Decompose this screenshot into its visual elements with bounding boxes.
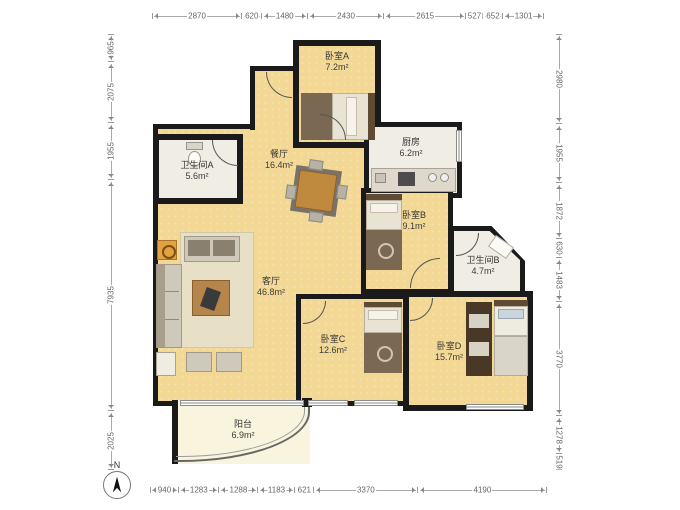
- dim-chain-bottom: 94012831288118362133704190: [150, 482, 547, 497]
- bed-c-pillow: [368, 310, 398, 320]
- label-bathroom-a: 卫生间A5.6m²: [180, 160, 213, 182]
- sofa-cushion-2: [213, 240, 235, 256]
- label-bedroom-d: 卧室D15.7m²: [435, 341, 463, 363]
- dim-value: 1955: [554, 143, 563, 163]
- room-area: 16.4m²: [265, 160, 293, 171]
- dim-segment: 652: [483, 8, 503, 23]
- toilet-tank: [186, 142, 203, 150]
- room-name: 卧室B: [402, 210, 426, 220]
- dim-chain-left: 9652075195579352025: [103, 34, 118, 470]
- bed-d-blanket: [494, 336, 528, 376]
- dim-segment: 621: [295, 482, 314, 497]
- dim-segment: 1480: [262, 8, 308, 23]
- lamp-icon: [162, 245, 176, 259]
- label-kitchen: 厨房6.2m²: [399, 137, 422, 159]
- sofa-seam-2: [165, 319, 179, 320]
- dim-arrow-icon: [219, 487, 225, 493]
- dim-arrow-icon: [258, 487, 264, 493]
- dim-arrow-icon: [384, 13, 390, 19]
- dim-segment: 1955: [551, 124, 566, 183]
- bed-b-blanket: [366, 230, 402, 270]
- dim-value: 1872: [554, 201, 563, 221]
- table-decor: [200, 287, 221, 311]
- dim-value: 1955: [106, 141, 115, 161]
- dim-value: 1283: [189, 485, 209, 494]
- dim-value: 630: [554, 241, 563, 256]
- dim-segment: 1483: [551, 258, 566, 303]
- room-area: 15.7m²: [435, 352, 463, 363]
- dim-arrow-icon: [152, 13, 158, 19]
- compass: N: [100, 460, 134, 499]
- bed-c-blanket: [364, 333, 402, 373]
- north-arrow-icon: [103, 471, 131, 499]
- dim-segment: 1955: [103, 123, 118, 180]
- dim-segment: 1183: [258, 482, 294, 497]
- dim-segment: 965: [103, 34, 118, 62]
- bedroom-c-window-2: [354, 400, 398, 406]
- bed-headboard: [368, 93, 375, 140]
- room-area: 46.8m²: [257, 287, 285, 298]
- dim-arrow-icon: [314, 487, 320, 493]
- room-name: 卫生间A: [180, 160, 213, 170]
- dim-segment: 1872: [551, 183, 566, 239]
- dim-value: 1288: [229, 485, 249, 494]
- dim-segment: 3770: [551, 302, 566, 415]
- dim-segment: 2615: [384, 8, 466, 23]
- kitchen-sink: [375, 173, 386, 183]
- room-name: 餐厅: [270, 149, 288, 159]
- room-name: 卧室C: [321, 334, 346, 344]
- side-table-lamp: [157, 240, 177, 260]
- dim-arrow-icon: [556, 183, 562, 189]
- dim-arrow-icon: [108, 62, 114, 68]
- dim-value: 940: [157, 485, 172, 494]
- dining-chair-3: [285, 184, 297, 199]
- dim-arrow-icon: [108, 180, 114, 186]
- dim-segment: 1301: [503, 8, 544, 23]
- room-area: 6.9m²: [231, 430, 254, 441]
- dim-segment: 2980: [551, 34, 566, 124]
- dim-segment: 1283: [179, 482, 219, 497]
- dim-value: 652: [485, 11, 500, 20]
- coffee-table: [192, 280, 230, 316]
- bed-pillow: [346, 97, 357, 136]
- label-bathroom-b: 卫生间B4.7m²: [466, 255, 499, 277]
- dim-arrow-icon: [418, 487, 424, 493]
- dim-segment: 519: [551, 454, 566, 470]
- kitchen-burner-icon: [428, 173, 437, 182]
- dim-arrow-icon: [108, 123, 114, 129]
- dim-value: 965: [106, 40, 115, 55]
- dim-value: 519: [554, 455, 563, 470]
- wardrobe-panel: [469, 314, 489, 328]
- dim-value: 2025: [106, 431, 115, 451]
- dim-arrow-icon: [556, 34, 562, 40]
- dim-segment: 2870: [152, 8, 242, 23]
- dim-value: 3770: [554, 349, 563, 369]
- sofa-seam: [165, 291, 179, 292]
- dim-arrow-icon: [541, 487, 547, 493]
- dim-arrow-icon: [556, 416, 562, 422]
- room-name: 厨房: [402, 137, 420, 147]
- dim-arrow-icon: [503, 13, 509, 19]
- dim-chain-top: 28706201480243026155276521301: [152, 8, 544, 23]
- dim-segment: 527: [466, 8, 483, 23]
- room-name: 阳台: [234, 419, 252, 429]
- dim-arrow-icon: [556, 302, 562, 308]
- north-label: N: [100, 460, 134, 470]
- label-bedroom-a: 卧室A7.2m²: [325, 51, 349, 73]
- dim-value: 1183: [267, 485, 286, 494]
- room-name: 卫生间B: [466, 255, 499, 265]
- dim-segment: 1288: [219, 482, 259, 497]
- balcony-door-window: [180, 400, 304, 406]
- room-name: 卧室D: [437, 341, 462, 351]
- room-name: 卧室A: [325, 51, 349, 61]
- dining-table: [295, 170, 338, 213]
- dim-value: 527: [467, 11, 482, 20]
- dining-chair-4: [336, 184, 348, 199]
- dim-value: 4190: [473, 485, 493, 494]
- dim-value: 2980: [554, 69, 563, 89]
- floor-plan: 28706201480243026155276521301 9401283128…: [0, 0, 680, 510]
- bedroom-d-window: [466, 404, 524, 410]
- blanket-ring-icon: [378, 243, 394, 259]
- dim-chain-right: 298019551872630148337701278519: [551, 34, 566, 470]
- dim-value: 1278: [554, 425, 563, 445]
- dim-segment: 7935: [103, 180, 118, 411]
- label-bedroom-b: 卧室B9.1m²: [402, 210, 426, 232]
- sofa-long: [156, 264, 182, 348]
- dim-value: 620: [244, 11, 259, 20]
- dim-arrow-icon: [108, 34, 114, 40]
- dim-value: 2870: [187, 11, 207, 20]
- living-cabinet: [156, 352, 176, 376]
- room-area: 12.6m²: [319, 345, 347, 356]
- sofa-cushion: [188, 240, 210, 256]
- label-balcony: 阳台6.9m²: [231, 419, 254, 441]
- dim-arrow-icon: [179, 487, 185, 493]
- bed-d-pillow: [498, 309, 524, 319]
- room-area: 6.2m²: [399, 148, 422, 159]
- dim-segment: 940: [150, 482, 179, 497]
- blanket-ring-icon-2: [377, 346, 393, 362]
- dim-segment: 620: [242, 8, 261, 23]
- kitchen-burner-icon-2: [440, 173, 449, 182]
- bedroom-c-window: [308, 400, 348, 406]
- dim-value: 1483: [554, 270, 563, 290]
- dim-value: 2430: [336, 11, 356, 20]
- room-name: 客厅: [262, 276, 280, 286]
- wardrobe-panel-2: [469, 342, 489, 356]
- ottoman: [186, 352, 212, 372]
- dim-arrow-icon: [150, 487, 156, 493]
- dim-value: 7935: [106, 285, 115, 305]
- bed-b-pillow: [370, 203, 398, 213]
- label-living: 客厅46.8m²: [257, 276, 285, 298]
- dim-segment: 1278: [551, 416, 566, 454]
- dim-value: 2075: [106, 82, 115, 102]
- sofa-back: [157, 265, 165, 347]
- kitchen-window: [456, 130, 462, 162]
- dim-segment: 2075: [103, 62, 118, 123]
- dim-value: 621: [297, 485, 312, 494]
- wardrobe: [466, 302, 492, 376]
- dim-arrow-icon: [538, 13, 544, 19]
- dim-arrow-icon: [262, 13, 268, 19]
- dim-segment: 4190: [418, 482, 547, 497]
- kitchen-stove: [398, 172, 415, 186]
- room-area: 9.1m²: [402, 221, 426, 232]
- dining-chair-2: [308, 211, 323, 223]
- dim-arrow-icon: [556, 258, 562, 264]
- label-bedroom-c: 卧室C12.6m²: [319, 334, 347, 356]
- dining-chair: [308, 159, 323, 171]
- room-area: 5.6m²: [180, 171, 213, 182]
- dim-value: 1301: [514, 11, 534, 20]
- room-area: 7.2m²: [325, 62, 349, 73]
- ottoman-2: [216, 352, 242, 372]
- dim-segment: 630: [551, 239, 566, 258]
- dim-value: 2615: [415, 11, 435, 20]
- label-dining: 餐厅16.4m²: [265, 149, 293, 171]
- dim-value: 1480: [275, 11, 295, 20]
- dim-arrow-icon: [556, 124, 562, 130]
- room-area: 4.7m²: [466, 266, 499, 277]
- dim-arrow-icon: [108, 411, 114, 417]
- dim-segment: 3370: [314, 482, 418, 497]
- dim-segment: 2430: [308, 8, 384, 23]
- dim-value: 3370: [356, 485, 376, 494]
- dim-arrow-icon: [308, 13, 314, 19]
